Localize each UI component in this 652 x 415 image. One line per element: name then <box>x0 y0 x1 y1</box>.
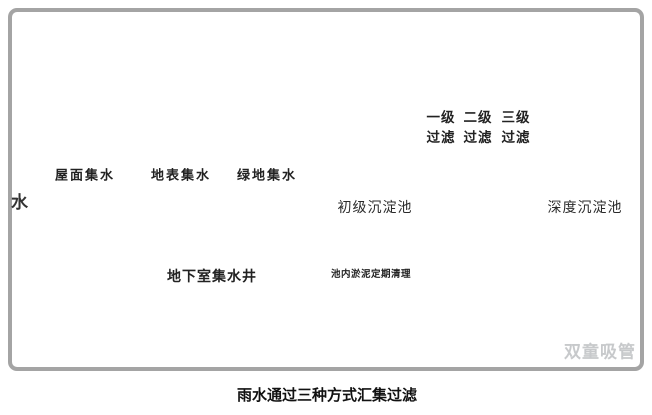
panel-frame <box>8 8 644 371</box>
diagram-caption: 雨水通过三种方式汇集过滤 <box>237 384 417 405</box>
diagram-canvas: 水 屋面集水 地表集水 绿地集水 一级过滤 二级过滤 三级过滤 初级沉淀池 深度… <box>0 0 652 415</box>
